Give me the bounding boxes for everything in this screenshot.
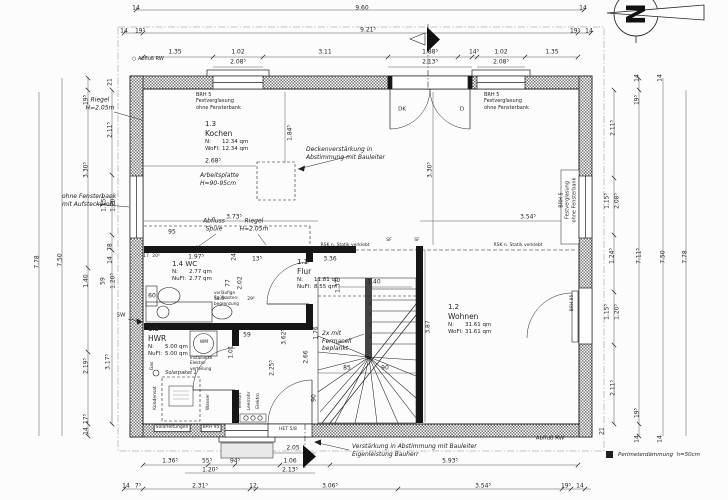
window-sill-top-right bbox=[472, 70, 530, 76]
annotation-label: 59 bbox=[99, 277, 107, 285]
annotation-label: installierte Elektro- verteilung bbox=[190, 355, 212, 371]
ceiling-reinforcement-zone bbox=[257, 162, 295, 200]
annotation-label: 3.30⁵ bbox=[82, 162, 90, 178]
room-label-kochen: 1.3KochenN:12.34 qmWoFl:12.34 qm bbox=[205, 120, 248, 152]
north-label: N bbox=[619, 3, 649, 25]
annotation-label: 14 bbox=[579, 4, 587, 12]
annotation-label: 2 bbox=[369, 324, 372, 330]
annotation-label: 85 bbox=[343, 364, 351, 372]
annotation-label: SW bbox=[117, 313, 126, 320]
annotation-label: Solarleitungen bbox=[154, 424, 191, 432]
annotation-label: Riegel H=2.05m bbox=[86, 97, 115, 112]
section-arrow-outline bbox=[410, 33, 425, 45]
annotation-label: 3.17⁵ bbox=[104, 354, 112, 370]
annotation-label: 1.20⁵ bbox=[202, 466, 218, 474]
annotation-label: 2.11⁵ bbox=[609, 120, 617, 136]
annotation-label: 2.05 bbox=[286, 444, 299, 452]
annotation-label: 3.87 bbox=[424, 320, 432, 333]
annotation-label: 14 bbox=[82, 427, 90, 435]
annotation-label: D bbox=[460, 107, 464, 114]
annotation-label: Abfluß RW bbox=[536, 436, 564, 443]
annotation-label: ○ Abfluß RW bbox=[132, 56, 164, 62]
annotation-label: 7.50 bbox=[56, 253, 64, 266]
annotation-label: 14 bbox=[633, 74, 641, 82]
annotation-label: 2.13⁵ bbox=[422, 58, 438, 66]
annotation-label: 2.31⁵ bbox=[192, 482, 208, 490]
annotation-label: 2.13⁵ bbox=[282, 466, 298, 474]
annotation-label: Deckenverstärkung in Abstimmung mit Baul… bbox=[306, 146, 385, 161]
annotation-label: Gas bbox=[150, 362, 156, 371]
annotation-label: 1.20⁵ bbox=[109, 273, 117, 289]
perimeter-insulation-swatch bbox=[606, 451, 613, 458]
annotation-label: 17 bbox=[143, 254, 149, 260]
annotation-label: 1.35 bbox=[545, 48, 558, 56]
north-arrow: N bbox=[607, 0, 704, 43]
annotation-label: 1.15⁵ bbox=[603, 304, 611, 320]
annotation-label: 3.54⁵ bbox=[520, 213, 536, 221]
boundary-lines bbox=[118, 27, 604, 451]
annotation-label: 2.08⁵ bbox=[613, 193, 621, 209]
annotation-label: BRH 5 Festverglasung ohne Fensterbank bbox=[196, 92, 241, 111]
annotation-label: 14 bbox=[132, 4, 140, 12]
annotation-label: HET 5/8 bbox=[279, 427, 297, 433]
annotation-label: 1.40 bbox=[367, 278, 380, 286]
window-sill-top-left bbox=[207, 70, 269, 76]
annotation-label: 1.36⁵ bbox=[162, 457, 178, 465]
wc-basin bbox=[212, 305, 232, 319]
double-terrace-door bbox=[388, 76, 472, 89]
room-label-flur: 1.1FlurN:11.81 qmNuFl:8.55 qm bbox=[297, 258, 340, 290]
annotation-label: 7.11⁵ bbox=[635, 248, 643, 264]
annotation-label: 2.66 bbox=[302, 350, 310, 363]
annotation-label: 1.02 bbox=[231, 48, 244, 56]
annotation-label: 2.19⁵ bbox=[82, 358, 90, 374]
annotation-label: 9.60 bbox=[355, 4, 368, 12]
annotation-label: 14 bbox=[656, 435, 664, 443]
annotation-label: 3.06⁵ bbox=[322, 482, 338, 490]
annotation-label: SF bbox=[386, 238, 391, 244]
annotation-label: 12 bbox=[249, 482, 257, 490]
sink-drain bbox=[195, 246, 199, 250]
annotation-label: 1.20⁵ bbox=[613, 304, 621, 320]
annotation-label: 3.62⁵ bbox=[280, 329, 288, 345]
annotation-label: 94⁵ bbox=[230, 457, 240, 465]
annotation-label: 1 bbox=[369, 335, 372, 341]
annotation-label: 2.02 bbox=[236, 276, 244, 289]
annotation-label: RSK n. Statik verklebt bbox=[320, 243, 369, 249]
annotation-label: 7.50 bbox=[659, 250, 667, 263]
annotation-label: 1.02 bbox=[494, 48, 507, 56]
annotation-label: 3 bbox=[369, 313, 372, 319]
annotation-label: 78 bbox=[106, 243, 114, 251]
annotation-label: 19⁵ bbox=[570, 27, 580, 35]
annotation-label: BRH 5 Festverglasung ohne Fensterbank bbox=[484, 92, 529, 111]
annotation-label: 19⁵ bbox=[561, 482, 571, 490]
annotation-label: 21 bbox=[598, 427, 606, 435]
annotation-label: Arbeitsplatte H=90-95cm bbox=[200, 172, 239, 187]
annotation-label: 29⁵ bbox=[247, 297, 255, 303]
annotation-label: Solarpaket 1 bbox=[165, 370, 197, 376]
annotation-label: SF bbox=[414, 238, 419, 244]
annotation-label: Leerrohr bbox=[247, 392, 253, 411]
annotation-label: 13⁵ bbox=[252, 255, 262, 263]
annotation-label: DK bbox=[398, 107, 406, 114]
legend-text: Perimeterdämmung h=50cm bbox=[618, 452, 700, 458]
annotation-label: Elektro bbox=[256, 393, 262, 409]
annotation-label: 14 bbox=[120, 27, 128, 35]
annotation-label: 60 bbox=[148, 292, 156, 300]
annotation-label: 1.76 bbox=[312, 326, 320, 339]
annotation-label: vorläufige Spülkasten- begrenzung bbox=[214, 290, 239, 306]
lightwell bbox=[221, 443, 273, 458]
window-sill-bottom bbox=[219, 437, 275, 442]
annotation-label: Riegel H=2.05m bbox=[240, 218, 269, 233]
annotation-label: 55⁵ bbox=[202, 457, 212, 465]
annotation-label: 77 bbox=[224, 279, 232, 287]
annotation-label: 59 bbox=[243, 331, 251, 339]
annotation-label: 21 bbox=[106, 78, 114, 86]
annotation-label: 1.24⁵ bbox=[608, 248, 616, 264]
annotation-label: 95 bbox=[168, 228, 176, 236]
annotation-label: 24 bbox=[230, 253, 238, 261]
annotation-label: 7.78 bbox=[33, 255, 41, 268]
annotation-label: 5.93⁵ bbox=[442, 457, 458, 465]
annotation-label: 90 bbox=[310, 394, 318, 402]
annotation-label: BRH 5 Festverglasung ohne Fensterbank bbox=[559, 178, 578, 223]
annotation-label: 2.08⁵ bbox=[493, 58, 509, 66]
annotation-label: 3.11 bbox=[318, 48, 331, 56]
annotation-label: BRH 95 bbox=[201, 424, 222, 432]
annotation-label: 14⁵ bbox=[469, 48, 479, 56]
annotation-label: Abfluss Spüle bbox=[203, 218, 225, 233]
annotation-label: ohne Fensterbank mit Aufsteckprofil bbox=[62, 193, 116, 208]
annotation-label: 19⁵ bbox=[633, 408, 641, 418]
annotation-label: 14 bbox=[106, 256, 114, 264]
annotation-label: 14 bbox=[585, 27, 593, 35]
annotation-label: 1.35 bbox=[168, 48, 181, 56]
annotation-label: 2.25⁵ bbox=[268, 360, 276, 376]
annotation-label: BRH 95 bbox=[570, 295, 576, 312]
annotation-label: 1.88⁵ bbox=[422, 48, 438, 56]
annotation-label: 90 bbox=[381, 364, 389, 372]
annotation-label: 1.84⁵ bbox=[286, 125, 294, 141]
annotation-label: 3.30⁵ bbox=[426, 162, 434, 178]
annotation-label: 14 bbox=[656, 74, 664, 82]
legend: Perimeterdämmung h=50cm bbox=[606, 451, 700, 458]
annotation-label: 14 bbox=[633, 435, 641, 443]
annotation-label: Wasser bbox=[206, 394, 212, 410]
annotation-label: 19⁵ bbox=[633, 95, 641, 105]
annotation-label: Telefon bbox=[238, 393, 244, 409]
annotation-label: 2x mit Fermacell beplankt bbox=[322, 330, 351, 353]
floor-plan-page: N 149.60141419⁵9.21⁵19⁵141.351.022.08⁵3.… bbox=[0, 0, 728, 500]
annotation-label: 7⁵ bbox=[135, 482, 141, 490]
annotation-label: 20⁵ bbox=[152, 254, 160, 260]
annotation-label: Verstärkung in Abstimmung mit Bauleiter … bbox=[352, 443, 477, 458]
annotation-label: 2.11⁵ bbox=[106, 122, 114, 138]
annotation-label: 4 bbox=[369, 302, 372, 308]
wc-vanity bbox=[146, 302, 212, 322]
annotation-label: Kondensat bbox=[153, 386, 159, 410]
gas-connection bbox=[153, 370, 159, 376]
annotation-label: 1.06 bbox=[283, 457, 296, 465]
window-right-lower bbox=[579, 288, 592, 344]
annotation-label: 7.78 bbox=[681, 250, 689, 263]
room-label-wc: 1.4 WCN:2.77 qmNuFl:2.77 qm bbox=[172, 260, 212, 282]
annotation-label: 19⁵ bbox=[135, 27, 145, 35]
annotation-label: 1.01 bbox=[227, 345, 235, 358]
annotation-label: 2.68⁵ bbox=[205, 157, 221, 165]
annotation-label: RSK n. Statik verklebt bbox=[493, 243, 542, 249]
room-label-wohnen: 1.2WohnenN:31.61 qmWoFl:31.61 qm bbox=[448, 303, 491, 335]
annotation-label: 9.21⁵ bbox=[360, 26, 376, 34]
annotation-label: WM bbox=[200, 340, 208, 346]
annotation-label: 3.54⁵ bbox=[475, 482, 491, 490]
annotation-label: 17⁵ bbox=[82, 414, 90, 424]
room-label-hwr: 1.5HWRN:5.00 qmNuFl:5.00 qm bbox=[148, 325, 188, 357]
annotation-label: 2.11⁵ bbox=[609, 380, 617, 396]
annotation-label: 1.40 bbox=[82, 274, 90, 287]
annotation-label: 14 bbox=[576, 482, 584, 490]
annotation-label: 2.08⁵ bbox=[230, 58, 246, 66]
annotation-label: 14 bbox=[122, 482, 130, 490]
section-arrow-bottom bbox=[303, 445, 316, 468]
annotation-label: 1.15⁵ bbox=[603, 193, 611, 209]
